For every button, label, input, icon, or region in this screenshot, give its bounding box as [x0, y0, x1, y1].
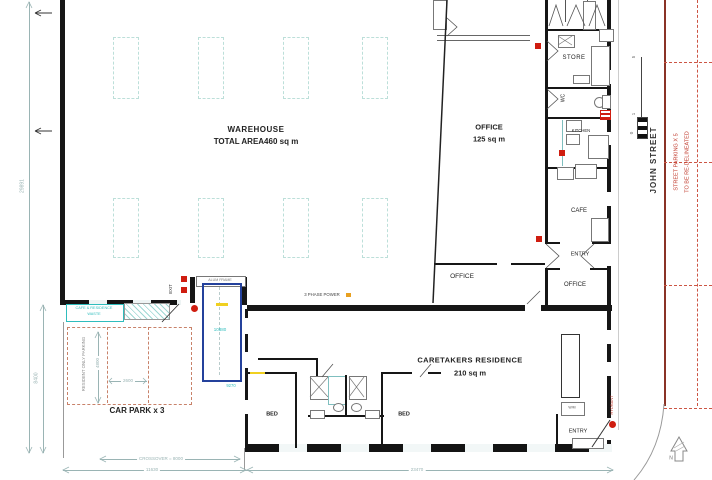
bath-door-swings	[322, 364, 431, 377]
wall-office-diagonal	[433, 0, 447, 303]
cubicle-cross	[558, 36, 572, 45]
floor-plan: WAREHOUSE TOTAL AREA460 sq m OFFICE 125 …	[0, 0, 712, 480]
firewall-door-swing	[527, 291, 540, 304]
linework-overlay	[0, 0, 712, 480]
kerb-corner-curve	[634, 404, 664, 480]
service-marker-arrows	[35, 10, 52, 134]
store-door-swing	[547, 41, 558, 61]
residence-entry-door	[592, 420, 610, 447]
office-door-swing	[447, 18, 457, 36]
cubicle-door-swings	[549, 5, 605, 26]
exit-door-swing	[162, 304, 179, 322]
shower-cross	[310, 377, 364, 397]
entry-door-swings	[546, 244, 594, 268]
wc-door-swing	[547, 89, 558, 109]
dim-arrowheads	[26, 2, 613, 473]
